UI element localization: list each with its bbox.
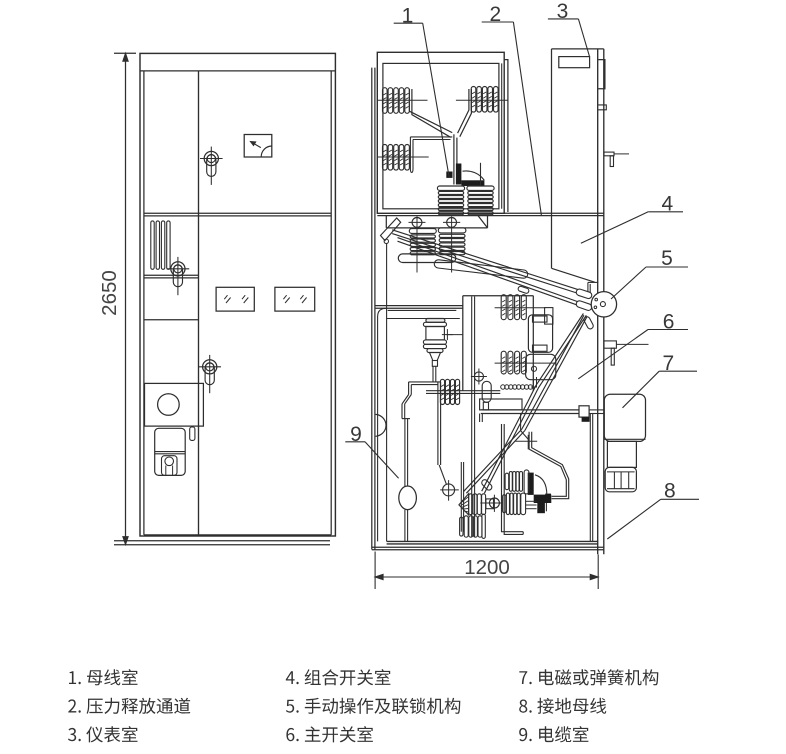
svg-text:3: 3 [557, 0, 569, 23]
svg-text:2650: 2650 [98, 270, 121, 316]
svg-text:2: 2 [489, 3, 501, 26]
svg-text:1200: 1200 [464, 556, 510, 579]
svg-text:1: 1 [402, 5, 414, 28]
